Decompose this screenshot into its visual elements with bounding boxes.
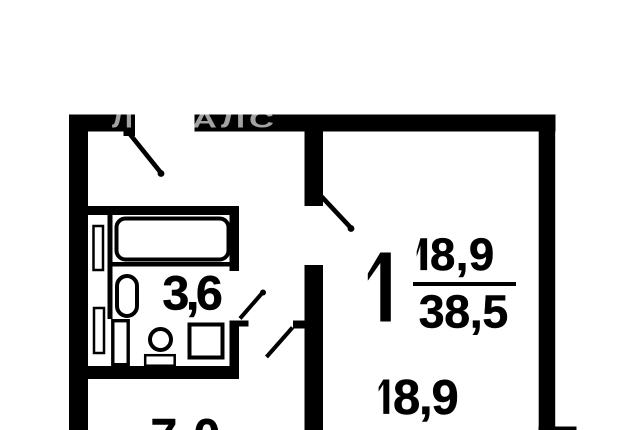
svg-text:АЛС: АЛС bbox=[192, 107, 278, 133]
svg-text:Л: Л bbox=[112, 107, 133, 133]
svg-text:7,0: 7,0 bbox=[151, 411, 222, 430]
svg-text:8,9: 8,9 bbox=[430, 229, 495, 280]
svg-text:3,6: 3,6 bbox=[162, 267, 221, 321]
svg-text:38,5: 38,5 bbox=[419, 286, 508, 338]
svg-text:8,9: 8,9 bbox=[393, 371, 458, 425]
